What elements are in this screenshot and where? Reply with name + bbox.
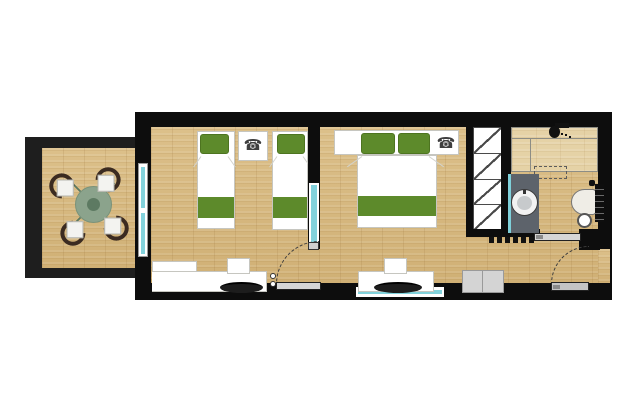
chair-seat xyxy=(98,175,115,192)
shower-line xyxy=(530,138,531,171)
toilet-roll xyxy=(577,213,592,228)
pillow xyxy=(398,133,430,154)
door-hinge xyxy=(270,281,276,287)
floor-plan: ☎ ☎ xyxy=(0,0,640,418)
desk-chair xyxy=(227,258,250,274)
wardrobe-shelf xyxy=(474,154,501,180)
double-bed xyxy=(357,155,437,228)
door-hinge xyxy=(270,273,276,279)
basin-bowl xyxy=(517,196,532,210)
pillow xyxy=(200,134,229,154)
wardrobe-shelf xyxy=(474,180,501,206)
bath-radiator xyxy=(595,184,604,222)
toilet-icon xyxy=(571,189,598,215)
chair-seat xyxy=(67,221,84,238)
door-handle xyxy=(553,285,560,289)
wardrobe-side-wall xyxy=(466,127,473,236)
pillow xyxy=(277,134,305,154)
tv-icon xyxy=(374,282,422,293)
interior-door xyxy=(276,282,321,290)
glass-pane xyxy=(311,185,317,242)
shower-head xyxy=(549,126,560,138)
chair-seat xyxy=(104,218,121,235)
duvet-stripe xyxy=(273,197,307,218)
window-glass xyxy=(141,213,145,254)
washbasin-icon xyxy=(511,189,538,216)
wardrobe-shelf xyxy=(474,205,501,230)
minibar-cabinet xyxy=(462,270,504,293)
built-in-wardrobe xyxy=(473,127,502,231)
sliding-window-balcony xyxy=(138,163,148,257)
door-handle xyxy=(536,235,543,239)
cabinet-divider xyxy=(482,271,483,292)
duvet-stripe xyxy=(198,197,234,218)
wardrobe-shelf xyxy=(474,128,501,154)
radiator-valve xyxy=(589,180,595,186)
entrance-door xyxy=(551,282,589,291)
glass-partition xyxy=(309,183,319,244)
basin-tap xyxy=(523,190,526,194)
pillow xyxy=(361,133,395,154)
entrance-opening xyxy=(598,249,610,283)
shower-head-icon xyxy=(549,123,573,143)
desk-chair xyxy=(384,258,407,274)
tv-icon xyxy=(220,282,263,293)
duvet-stripe xyxy=(358,196,436,216)
wardrobe-door-track xyxy=(489,237,535,243)
shower-spray xyxy=(561,133,563,135)
telephone-icon: ☎ xyxy=(434,136,458,151)
telephone-icon: ☎ xyxy=(241,138,265,153)
chair-seat xyxy=(57,180,74,197)
bathroom-door xyxy=(534,233,581,241)
window-glass xyxy=(141,167,145,208)
